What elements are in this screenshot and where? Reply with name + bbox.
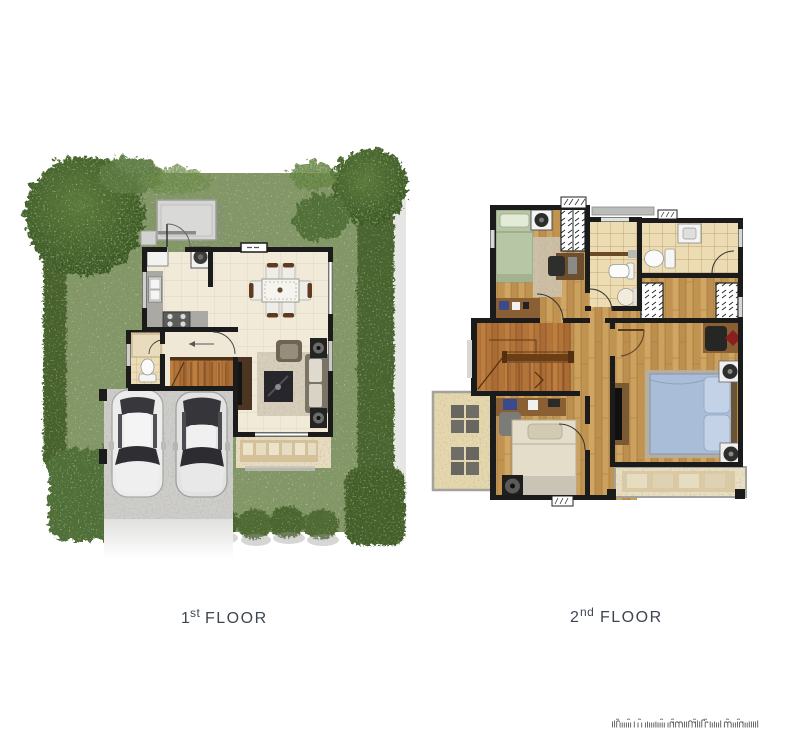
svg-text:nd: nd: [580, 605, 594, 619]
svg-text:2: 2: [570, 609, 580, 626]
svg-text:st: st: [190, 606, 201, 620]
svg-text:FLOOR: FLOOR: [600, 609, 663, 626]
svg-text:FLOOR: FLOOR: [205, 610, 268, 627]
